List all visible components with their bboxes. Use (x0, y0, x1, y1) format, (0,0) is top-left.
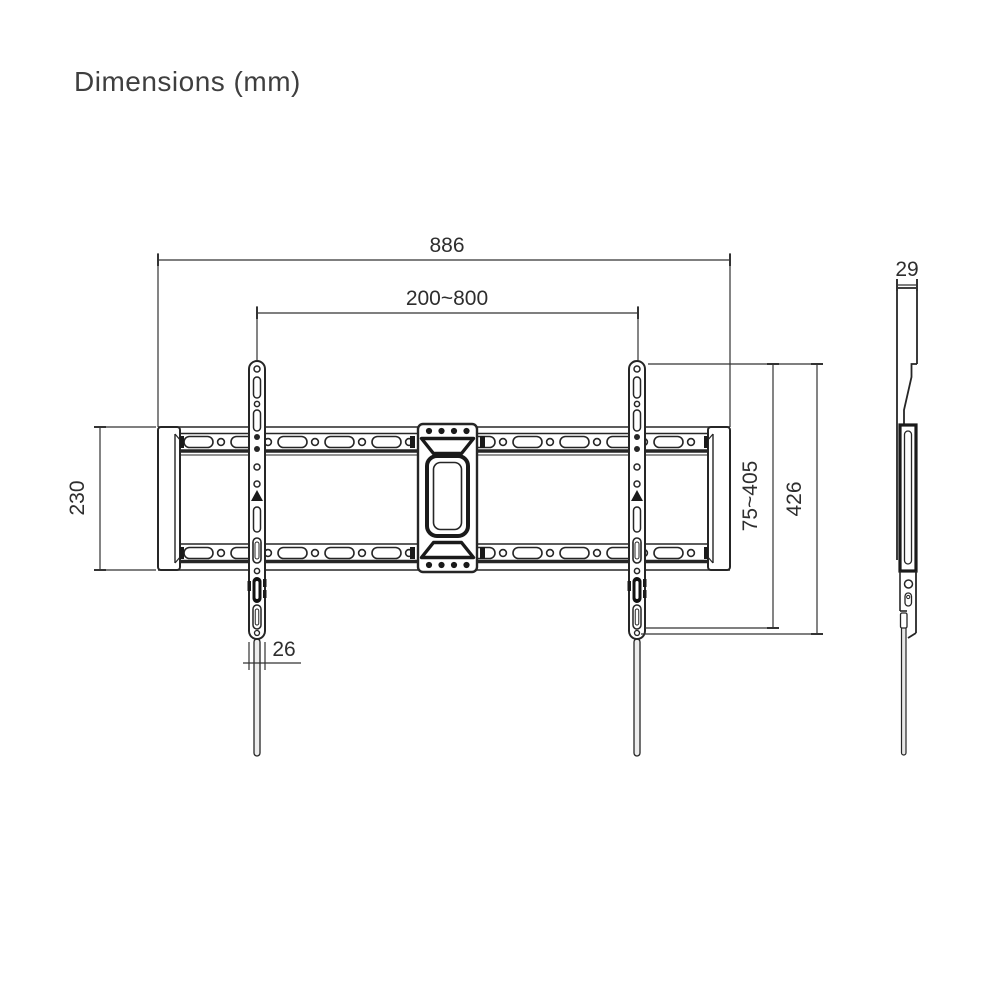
side-view: 29 (895, 258, 918, 755)
right-end-cap (707, 427, 730, 570)
left-end-cap (158, 427, 181, 570)
page-title: Dimensions (mm) (74, 66, 301, 98)
side-pull-cord (901, 613, 908, 755)
dim-label-mount-height-range: 75~405 (739, 461, 762, 532)
technical-drawing: 886 200~800 230 (0, 0, 1000, 1000)
dim-label-mount-width-range: 200~800 (406, 287, 488, 310)
dim-plate-height (94, 427, 156, 570)
dim-mount-width-range (257, 306, 638, 360)
side-hook-profile (904, 364, 917, 426)
center-plate (418, 424, 477, 572)
side-wall-plate (900, 425, 916, 571)
dimension-diagram-page: Dimensions (mm) (0, 0, 1000, 1000)
dim-label-depth: 29 (895, 258, 918, 281)
right-vesa-strip (628, 361, 647, 756)
dim-label-overall-width: 886 (429, 234, 464, 257)
front-view: 886 200~800 230 (66, 234, 823, 756)
dim-label-strip-width: 26 (272, 638, 295, 661)
left-vesa-strip (248, 361, 267, 756)
dim-label-bracket-height: 426 (783, 481, 806, 516)
dim-label-plate-height: 230 (66, 480, 89, 515)
